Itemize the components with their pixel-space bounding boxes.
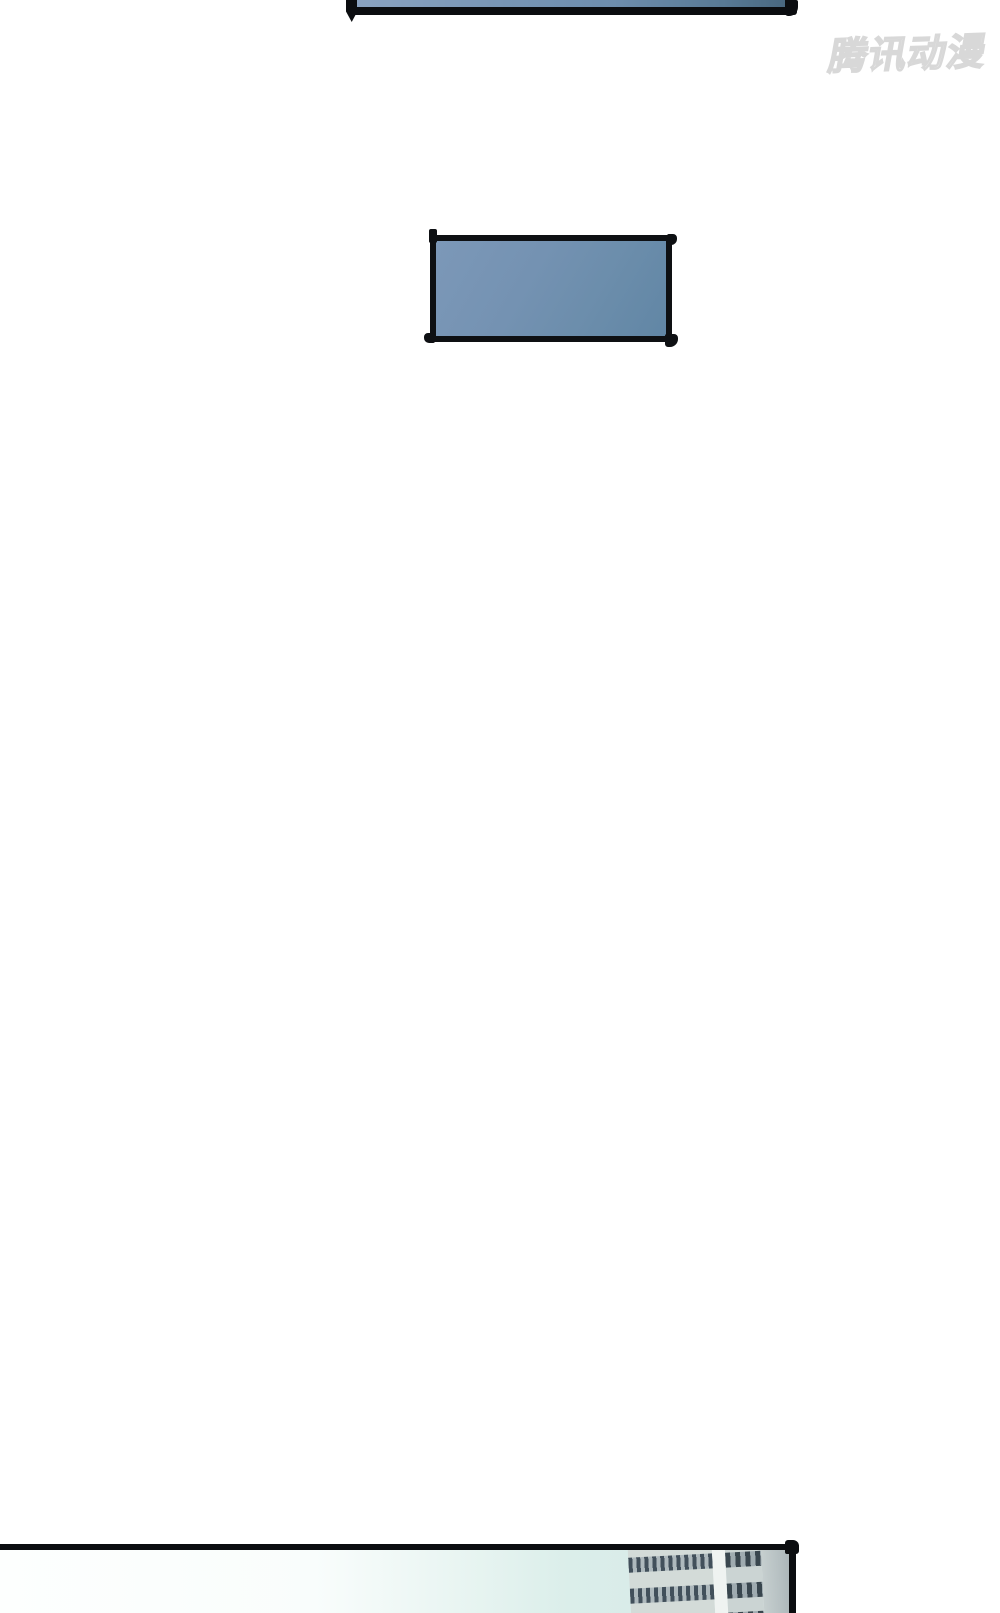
- building-window-row: [727, 1582, 764, 1599]
- bottom-panel-border-top: [0, 1544, 796, 1550]
- top-panel-left-corner-stroke: [346, 0, 357, 22]
- bottom-panel-sky: [0, 1550, 789, 1613]
- bottom-panel-border-right: [789, 1544, 796, 1613]
- building-window-row: [630, 1584, 715, 1603]
- building-window-row: [628, 1553, 713, 1572]
- bottom-panel-corner-stroke-top-right: [785, 1540, 799, 1554]
- top-panel-border-bottom: [349, 7, 797, 15]
- building-right-face: [725, 1550, 765, 1613]
- middle-panel-corner-stroke-bottom-right: [665, 334, 678, 347]
- tencent-comics-watermark: 腾讯动漫: [812, 23, 1000, 85]
- office-building: [628, 1550, 789, 1613]
- building-front-face: [628, 1550, 716, 1613]
- building-window-row: [725, 1551, 762, 1568]
- middle-panel-corner-stroke-top-right: [667, 234, 677, 245]
- middle-panel: [430, 235, 672, 342]
- bottom-panel: [0, 772, 797, 841]
- middle-panel-corner-stroke-top-left: [429, 229, 437, 243]
- building-side-wall: [761, 1550, 789, 1613]
- middle-panel-corner-stroke-bottom-left: [424, 333, 435, 343]
